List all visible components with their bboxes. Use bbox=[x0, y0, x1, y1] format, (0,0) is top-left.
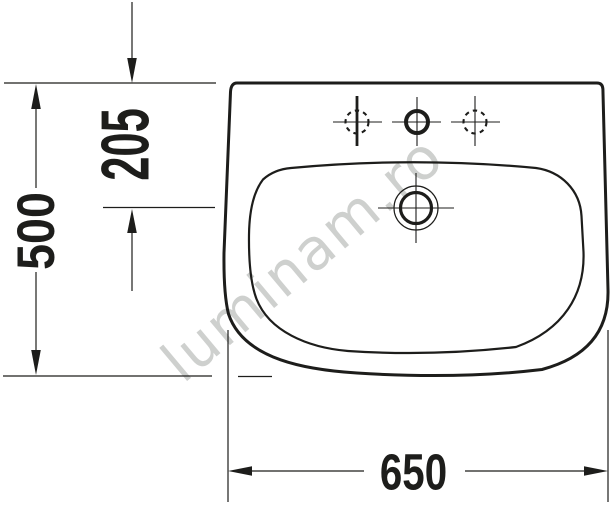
dim-label-205: 205 bbox=[88, 108, 164, 181]
watermark-text: luminam.ro bbox=[150, 123, 457, 395]
arrowhead-650-right bbox=[584, 466, 608, 475]
arrowhead-650-left bbox=[228, 466, 252, 475]
faucet-hole-left bbox=[333, 96, 382, 146]
washbasin-drawing-svg: luminam.ro bbox=[0, 0, 613, 508]
dim-label-500: 500 bbox=[6, 192, 65, 270]
faucet-hole-right bbox=[451, 96, 500, 146]
dim-label-650: 650 bbox=[380, 443, 447, 501]
arrowhead-500-up bbox=[31, 84, 41, 109]
arrowhead-500-down bbox=[31, 350, 41, 375]
technical-drawing-canvas: luminam.ro bbox=[0, 0, 613, 508]
arrowhead-205-up bbox=[127, 209, 137, 233]
arrowhead-205-down bbox=[127, 58, 137, 83]
